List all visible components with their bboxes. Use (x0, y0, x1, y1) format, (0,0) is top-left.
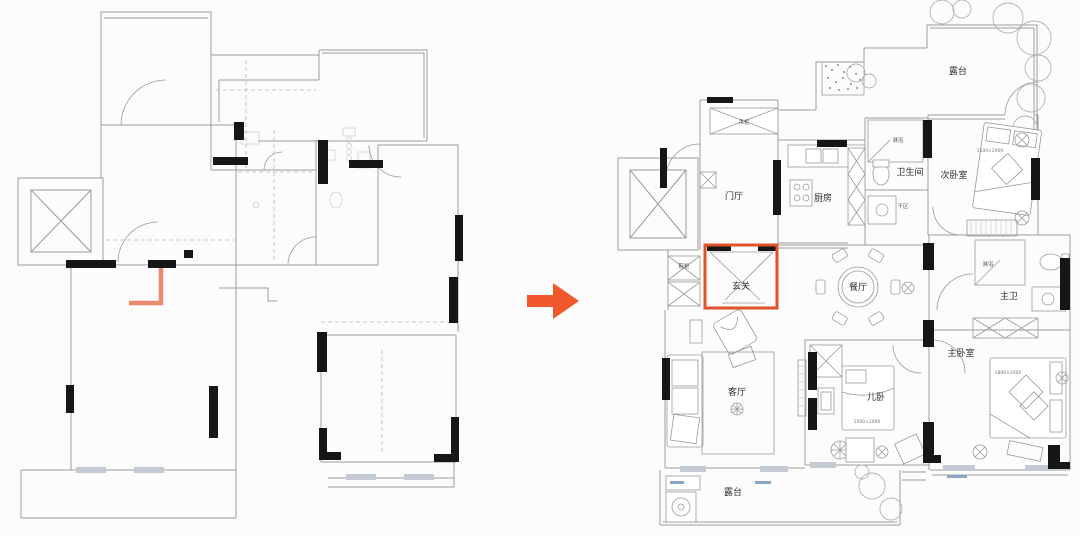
plant-icon (731, 403, 743, 415)
stove-icon (790, 180, 812, 206)
armchair-icon (712, 308, 758, 355)
furniture-layer (666, 108, 1069, 522)
door-arcs (118, 80, 401, 265)
label-shoe-cabinet: 鞋柜 (678, 262, 690, 270)
label-shower: 淋浴 (892, 136, 904, 144)
room-label-bathroom: 卫生间 (896, 166, 923, 178)
vanity-icon (868, 196, 896, 224)
room-label-second-bedroom: 次卧室 (940, 169, 967, 181)
room-label-kids-bedroom: 儿卧 (867, 391, 885, 403)
original-floor-plan (6, 0, 476, 536)
label-hanging-cabinet: 吊柜 (738, 118, 750, 126)
bench (1007, 441, 1043, 462)
dim-kids-bed: 1500×2000 (854, 419, 881, 425)
washing-machine-icon (666, 492, 696, 522)
dashed-lines (106, 60, 456, 455)
tall-cabinet (848, 148, 865, 225)
room-label-master-bath: 主卫 (1000, 290, 1018, 302)
wall-change-marker (129, 268, 161, 303)
desk (846, 438, 874, 462)
planter-bed (822, 62, 864, 95)
structural-walls (66, 122, 463, 462)
floor-plan-comparison: 露台 门厅 厨房 卫生间 次卧室 玄关 餐厅 主卫 客厅 儿卧 主卧室 露台 吊… (0, 0, 1080, 536)
label-dry-area: 干区 (897, 203, 909, 210)
right-arrow-icon (527, 283, 579, 319)
room-label-master-bedroom: 主卧室 (947, 347, 974, 359)
room-label-foyer: 玄关 (732, 280, 750, 292)
transform-arrow (525, 280, 581, 322)
toilet-icon (1040, 254, 1062, 270)
room-label-terrace-top: 露台 (949, 65, 967, 77)
room-label-entrance-hall: 门厅 (725, 190, 743, 202)
dim-second-bed: 1500×2000 (977, 148, 1004, 154)
room-label-dining: 餐厅 (849, 281, 867, 293)
side-table (690, 320, 702, 343)
foyer-closet-lines (710, 252, 773, 303)
sofa-icon (667, 355, 703, 447)
label-shower-master: 淋浴 (982, 260, 994, 268)
furnished-floor-plan: 露台 门厅 厨房 卫生间 次卧室 玄关 餐厅 主卫 客厅 儿卧 主卧室 露台 吊… (610, 0, 1080, 536)
kids-bedroom-furniture (810, 345, 926, 464)
room-label-terrace-bottom: 露台 (724, 486, 742, 498)
room-label-living: 客厅 (728, 386, 746, 398)
master-bath-fixtures (973, 240, 1069, 338)
foyer-highlight-box (705, 245, 777, 308)
dim-master-bed: 1800×2000 (995, 370, 1022, 376)
wardrobe-hatch (967, 220, 1017, 236)
chair (894, 434, 925, 464)
room-label-kitchen: 厨房 (814, 192, 832, 204)
